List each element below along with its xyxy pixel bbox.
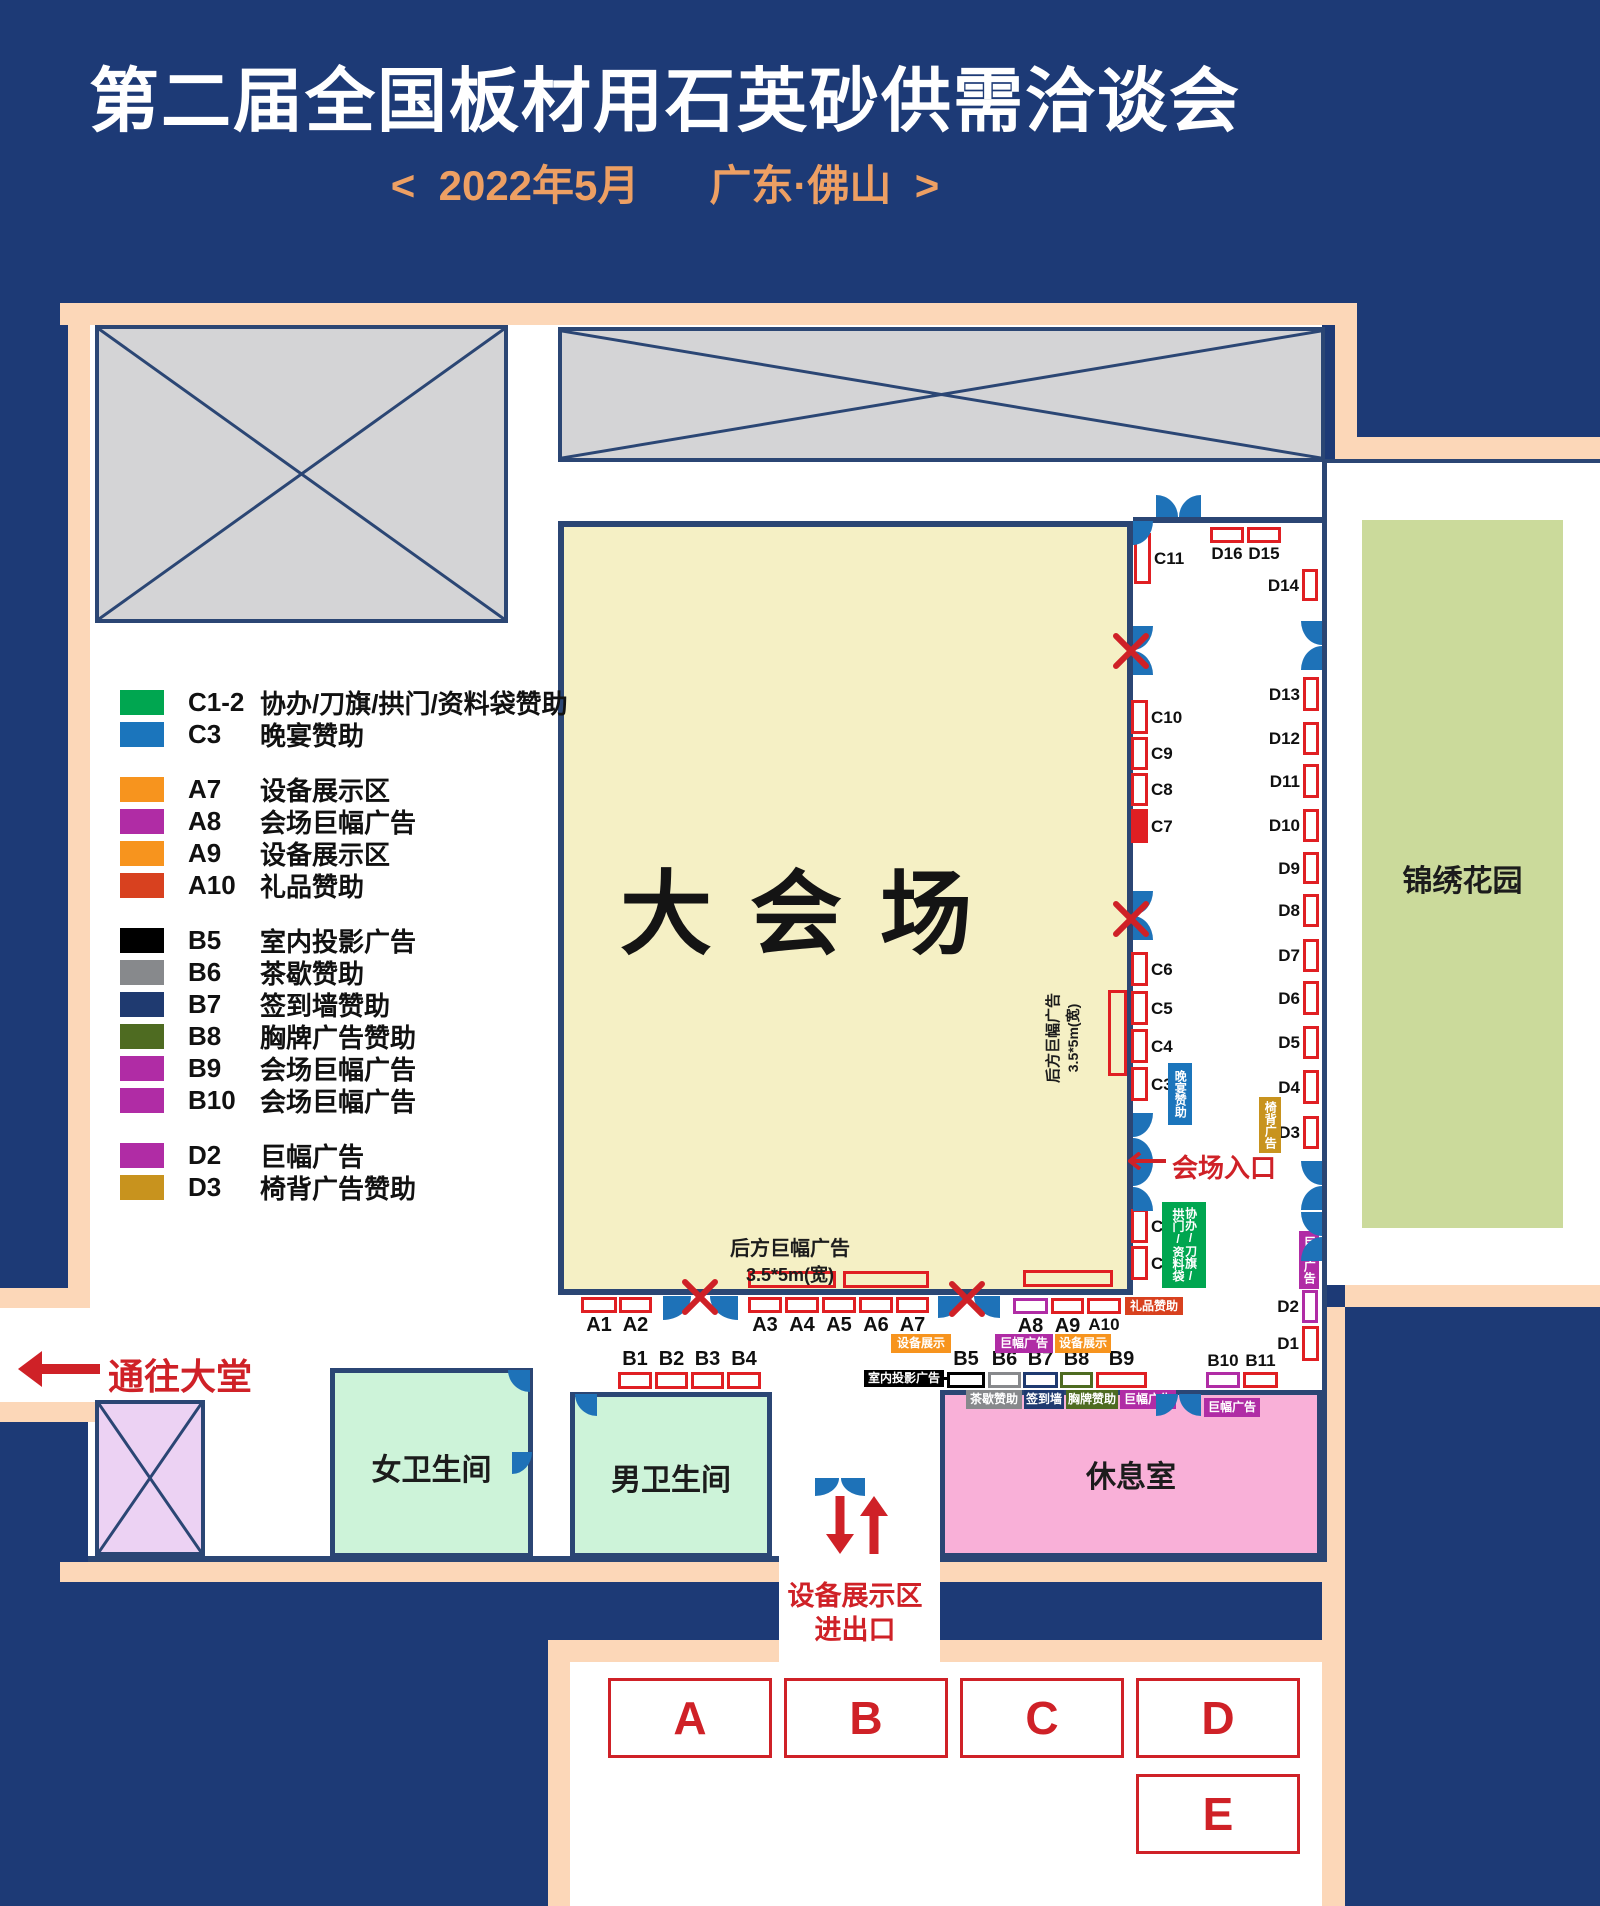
legend-label-C3: 晚宴赞助 (260, 716, 364, 753)
page-subtitle: < 2022年5月 广东·佛山 > (0, 152, 1330, 213)
booth-label-B4: B4 (716, 1348, 772, 1371)
booth-C2 (1131, 1209, 1148, 1243)
legend-row-A8: A8会场巨幅广告 (120, 809, 568, 834)
legend-row-B7: B7签到墙赞助 (120, 992, 568, 1017)
border-peach-panel-top-left (548, 1640, 779, 1662)
entrance-arrow-icon (1128, 1152, 1168, 1170)
tag-banner-b10: 巨幅广告 (1204, 1398, 1260, 1417)
legend-code-D2: D2 (188, 1140, 260, 1171)
booth-D15 (1247, 527, 1281, 543)
booth-label-D13: D13 (1252, 685, 1300, 705)
legend-label-D3: 椅背广告赞助 (260, 1169, 416, 1206)
booth-B11 (1243, 1372, 1278, 1388)
booth-A1 (581, 1297, 617, 1313)
women-restroom-label: 女卫生间 (330, 1445, 533, 1489)
legend-swatch-A8 (120, 809, 164, 834)
booth-B1 (618, 1372, 652, 1389)
tag-dinner: 晚宴赞助 (1168, 1063, 1192, 1125)
to-lobby-arrow-icon (12, 1347, 102, 1391)
booth-label-D14: D14 (1251, 576, 1299, 596)
legend-swatch-B8 (120, 1024, 164, 1049)
tag-equip-a9: 设备展示 (1055, 1334, 1111, 1353)
booth-C10 (1131, 700, 1148, 734)
booth-D16 (1210, 527, 1244, 543)
legend-group-1: C1-2协办/刀旗/拱门/资料袋赞助C3晚宴赞助 (120, 690, 568, 747)
booth-label-D2: D2 (1251, 1297, 1299, 1317)
booth-D3 (1303, 1116, 1319, 1149)
rear-banner-note-line1: 后方巨幅广告 (700, 1232, 880, 1261)
zone-box-B: B (784, 1678, 948, 1758)
rear-banner-note-side-line1: 后方巨幅广告 (1042, 982, 1063, 1094)
legend-row-B6: B6茶歇赞助 (120, 960, 568, 985)
booth-label-D10: D10 (1252, 816, 1300, 836)
booth-label-D6: D6 (1252, 989, 1300, 1009)
blocked-area-top (558, 327, 1325, 462)
booth-A2 (619, 1297, 652, 1313)
tag-gift: 礼品赞助 (1125, 1297, 1183, 1315)
border-peach-panel-left (548, 1662, 570, 1906)
legend-code-B8: B8 (188, 1021, 260, 1052)
legend-code-A7: A7 (188, 774, 260, 805)
legend-code-A8: A8 (188, 806, 260, 837)
legend-swatch-B5 (120, 928, 164, 953)
booth-label-C10: C10 (1151, 708, 1199, 728)
tag-badge: 胸牌赞助 (1066, 1390, 1118, 1409)
booth-label-C11: C11 (1154, 549, 1202, 569)
legend-code-B10: B10 (188, 1085, 260, 1116)
booth-D7 (1303, 939, 1319, 972)
legend-swatch-B6 (120, 960, 164, 985)
legend-code-D3: D3 (188, 1172, 260, 1203)
booth-C5 (1131, 991, 1148, 1025)
booth-D2 (1302, 1290, 1318, 1323)
booth-B4 (727, 1372, 761, 1389)
booth-label-D4: D4 (1252, 1078, 1300, 1098)
border-peach-panel-top-right (940, 1640, 1345, 1662)
legend-swatch-B10 (120, 1088, 164, 1113)
legend-group-2: A7设备展示区A8会场巨幅广告A9设备展示区A10礼品赞助 (120, 777, 568, 898)
booth-label-A2: A2 (608, 1314, 664, 1337)
zone-box-C: C (960, 1678, 1124, 1758)
legend-swatch-C3 (120, 722, 164, 747)
booth-label-D9: D9 (1252, 859, 1300, 879)
booth-A4 (785, 1297, 819, 1313)
legend-group-4: D2巨幅广告D3椅背广告赞助 (120, 1143, 568, 1200)
blocked-area-lobby (95, 1400, 205, 1556)
booth-label-D8: D8 (1252, 901, 1300, 921)
legend-row-A10: A10礼品赞助 (120, 873, 568, 898)
booth-B9 (1096, 1372, 1147, 1388)
booth-D8 (1303, 894, 1319, 927)
booth-C9 (1131, 737, 1148, 770)
legend-row-A9: A9设备展示区 (120, 841, 568, 866)
booth-A9 (1051, 1298, 1084, 1314)
legend-code-C3: C3 (188, 719, 260, 750)
legend-row-C1-2: C1-2协办/刀旗/拱门/资料袋赞助 (120, 690, 568, 715)
legend-swatch-A9 (120, 841, 164, 866)
legend-code-C1-2: C1-2 (188, 687, 260, 718)
booth-B7 (1023, 1372, 1058, 1388)
rear-banner-note: 后方巨幅广告 3.5*5m(宽) (700, 1232, 880, 1287)
booth-label-D7: D7 (1252, 946, 1300, 966)
legend: C1-2协办/刀旗/拱门/资料袋赞助C3晚宴赞助A7设备展示区A8会场巨幅广告A… (120, 690, 568, 1230)
booth-D10 (1303, 809, 1319, 842)
legend-row-B9: B9会场巨幅广告 (120, 1056, 568, 1081)
booth-D5 (1303, 1026, 1319, 1059)
tag-coop: 协办/刀旗/拱门/资料袋 (1162, 1202, 1206, 1288)
booth-D13 (1303, 677, 1319, 711)
garden-label: 锦绣花园 (1362, 856, 1563, 900)
legend-code-B7: B7 (188, 989, 260, 1020)
booth-B3 (691, 1372, 724, 1389)
booth-D12 (1303, 722, 1319, 755)
booth-A8 (1013, 1298, 1048, 1314)
lounge-label: 休息室 (940, 1452, 1322, 1496)
booth-label-B11: B11 (1233, 1351, 1289, 1371)
rear-banner-note-side-line2: 3.5*5m(宽) (1063, 982, 1083, 1094)
booth-label-D5: D5 (1252, 1033, 1300, 1053)
border-peach-bottomwall-left (60, 1562, 779, 1582)
floor-plan-poster: 第二届全国板材用石英砂供需洽谈会 < 2022年5月 广东·佛山 > A1A2A… (0, 0, 1600, 1906)
booth-label-C9: C9 (1151, 744, 1199, 764)
to-lobby-label: 通往大堂 (108, 1348, 252, 1400)
booth-D4 (1303, 1070, 1319, 1104)
legend-swatch-A7 (120, 777, 164, 802)
zone-box-A: A (608, 1678, 772, 1758)
booth-A5 (822, 1297, 856, 1313)
booth-C3 (1131, 1067, 1148, 1101)
entrance-label: 会场入口 (1172, 1148, 1276, 1185)
booth-label-D12: D12 (1252, 729, 1300, 749)
booth-label-C8: C8 (1151, 780, 1199, 800)
legend-row-B5: B5室内投影广告 (120, 928, 568, 953)
wall-plan-right-wall (1322, 459, 1327, 1562)
blocked-area-lobby-x-icon (99, 1404, 201, 1552)
booth-A7 (896, 1297, 929, 1313)
blocked-area-top-left-x-icon (99, 329, 504, 619)
legend-swatch-B9 (120, 1056, 164, 1081)
zone-box-D: D (1136, 1678, 1300, 1758)
rear-banner-note-line2: 3.5*5m(宽) (700, 1261, 880, 1287)
booth-D14 (1302, 569, 1318, 601)
rear-banner-note-side: 后方巨幅广告 3.5*5m(宽) (1042, 982, 1086, 1094)
legend-swatch-C1-2 (120, 690, 164, 715)
legend-code-A10: A10 (188, 870, 260, 901)
legend-swatch-B7 (120, 992, 164, 1017)
equip-gate-arrows-icon (822, 1494, 892, 1556)
legend-label-A10: 礼品赞助 (260, 867, 364, 904)
booth-label-D16: D16 (1199, 544, 1255, 564)
wall-corridor-top-wall (1133, 517, 1327, 523)
booth-label-D1: D1 (1251, 1334, 1299, 1354)
legend-swatch-A10 (120, 873, 164, 898)
rear-banner-slot-4 (1108, 990, 1127, 1076)
legend-row-C3: C3晚宴赞助 (120, 722, 568, 747)
closed-door-x-icon-4 (1111, 899, 1151, 939)
tag-projection: 室内投影广告 (864, 1370, 944, 1387)
legend-group-3: B5室内投影广告B6茶歇赞助B7签到墙赞助B8胸牌广告赞助B9会场巨幅广告B10… (120, 928, 568, 1113)
legend-row-B8: B8胸牌广告赞助 (120, 1024, 568, 1049)
booth-B5 (947, 1372, 985, 1388)
legend-swatch-D3 (120, 1175, 164, 1200)
blocked-area-top-left (95, 325, 508, 623)
booth-B8 (1060, 1372, 1093, 1388)
blocked-area-top-x-icon (562, 331, 1321, 458)
men-restroom-label: 男卫生间 (570, 1455, 772, 1499)
equip-gate-label-line2: 进出口 (770, 1608, 940, 1647)
tag-projection-connector (942, 1377, 949, 1380)
legend-row-A7: A7设备展示区 (120, 777, 568, 802)
booth-label-C7: C7 (1151, 817, 1199, 837)
border-peach-left-corner (0, 1288, 90, 1308)
booth-label-D11: D11 (1252, 772, 1300, 792)
border-peach-garden-bottom (1345, 1285, 1600, 1307)
border-peach-left-low (0, 1402, 96, 1422)
booth-B6 (988, 1372, 1021, 1388)
booth-D11 (1303, 764, 1319, 798)
booth-label-C6: C6 (1151, 960, 1199, 980)
tag-signwall: 签到墙 (1024, 1390, 1064, 1409)
wall-garden-top-wall (1327, 459, 1600, 463)
border-peach-left (68, 303, 90, 1288)
booth-B2 (655, 1372, 688, 1389)
legend-code-B9: B9 (188, 1053, 260, 1084)
booth-D1 (1302, 1326, 1319, 1361)
legend-code-B5: B5 (188, 925, 260, 956)
legend-code-A9: A9 (188, 838, 260, 869)
legend-label-B10: 会场巨幅广告 (260, 1082, 416, 1119)
booth-A3 (748, 1297, 782, 1313)
legend-row-D3: D3椅背广告赞助 (120, 1175, 568, 1200)
border-peach-garden-top (1345, 437, 1600, 459)
tag-chair: 椅背广告 (1259, 1097, 1281, 1153)
booth-B10 (1206, 1372, 1240, 1388)
booth-C6 (1131, 952, 1148, 986)
rear-banner-slot-3 (1023, 1270, 1113, 1287)
border-peach-top (60, 303, 1357, 325)
border-peach-right-top (1335, 303, 1357, 459)
closed-door-x-icon-3 (1111, 631, 1151, 671)
tag-tea: 茶歇赞助 (966, 1390, 1022, 1409)
booth-C8 (1131, 773, 1148, 806)
booth-label-A10: A10 (1076, 1315, 1132, 1335)
tag-banner-a8: 巨幅广告 (995, 1334, 1053, 1353)
closed-door-x-icon-2 (947, 1279, 987, 1319)
legend-row-B10: B10会场巨幅广告 (120, 1088, 568, 1113)
legend-swatch-D2 (120, 1143, 164, 1168)
legend-row-D2: D2巨幅广告 (120, 1143, 568, 1168)
booth-label-C5: C5 (1151, 999, 1199, 1019)
booth-C1 (1131, 1246, 1148, 1280)
legend-code-B6: B6 (188, 957, 260, 988)
zone-box-E: E (1136, 1774, 1300, 1854)
border-peach-bottomwall-right (940, 1562, 1345, 1582)
booth-label-C4: C4 (1151, 1037, 1199, 1057)
booth-A6 (859, 1297, 893, 1313)
tag-equip-a7: 设备展示 (891, 1334, 951, 1353)
booth-D9 (1303, 852, 1319, 884)
main-hall-label: 大会场 (620, 840, 1010, 973)
booth-D6 (1303, 981, 1319, 1015)
booth-C7 (1131, 809, 1148, 843)
booth-A10 (1087, 1298, 1121, 1314)
page-title: 第二届全国板材用石英砂供需洽谈会 (0, 45, 1330, 146)
booth-C4 (1131, 1029, 1148, 1063)
